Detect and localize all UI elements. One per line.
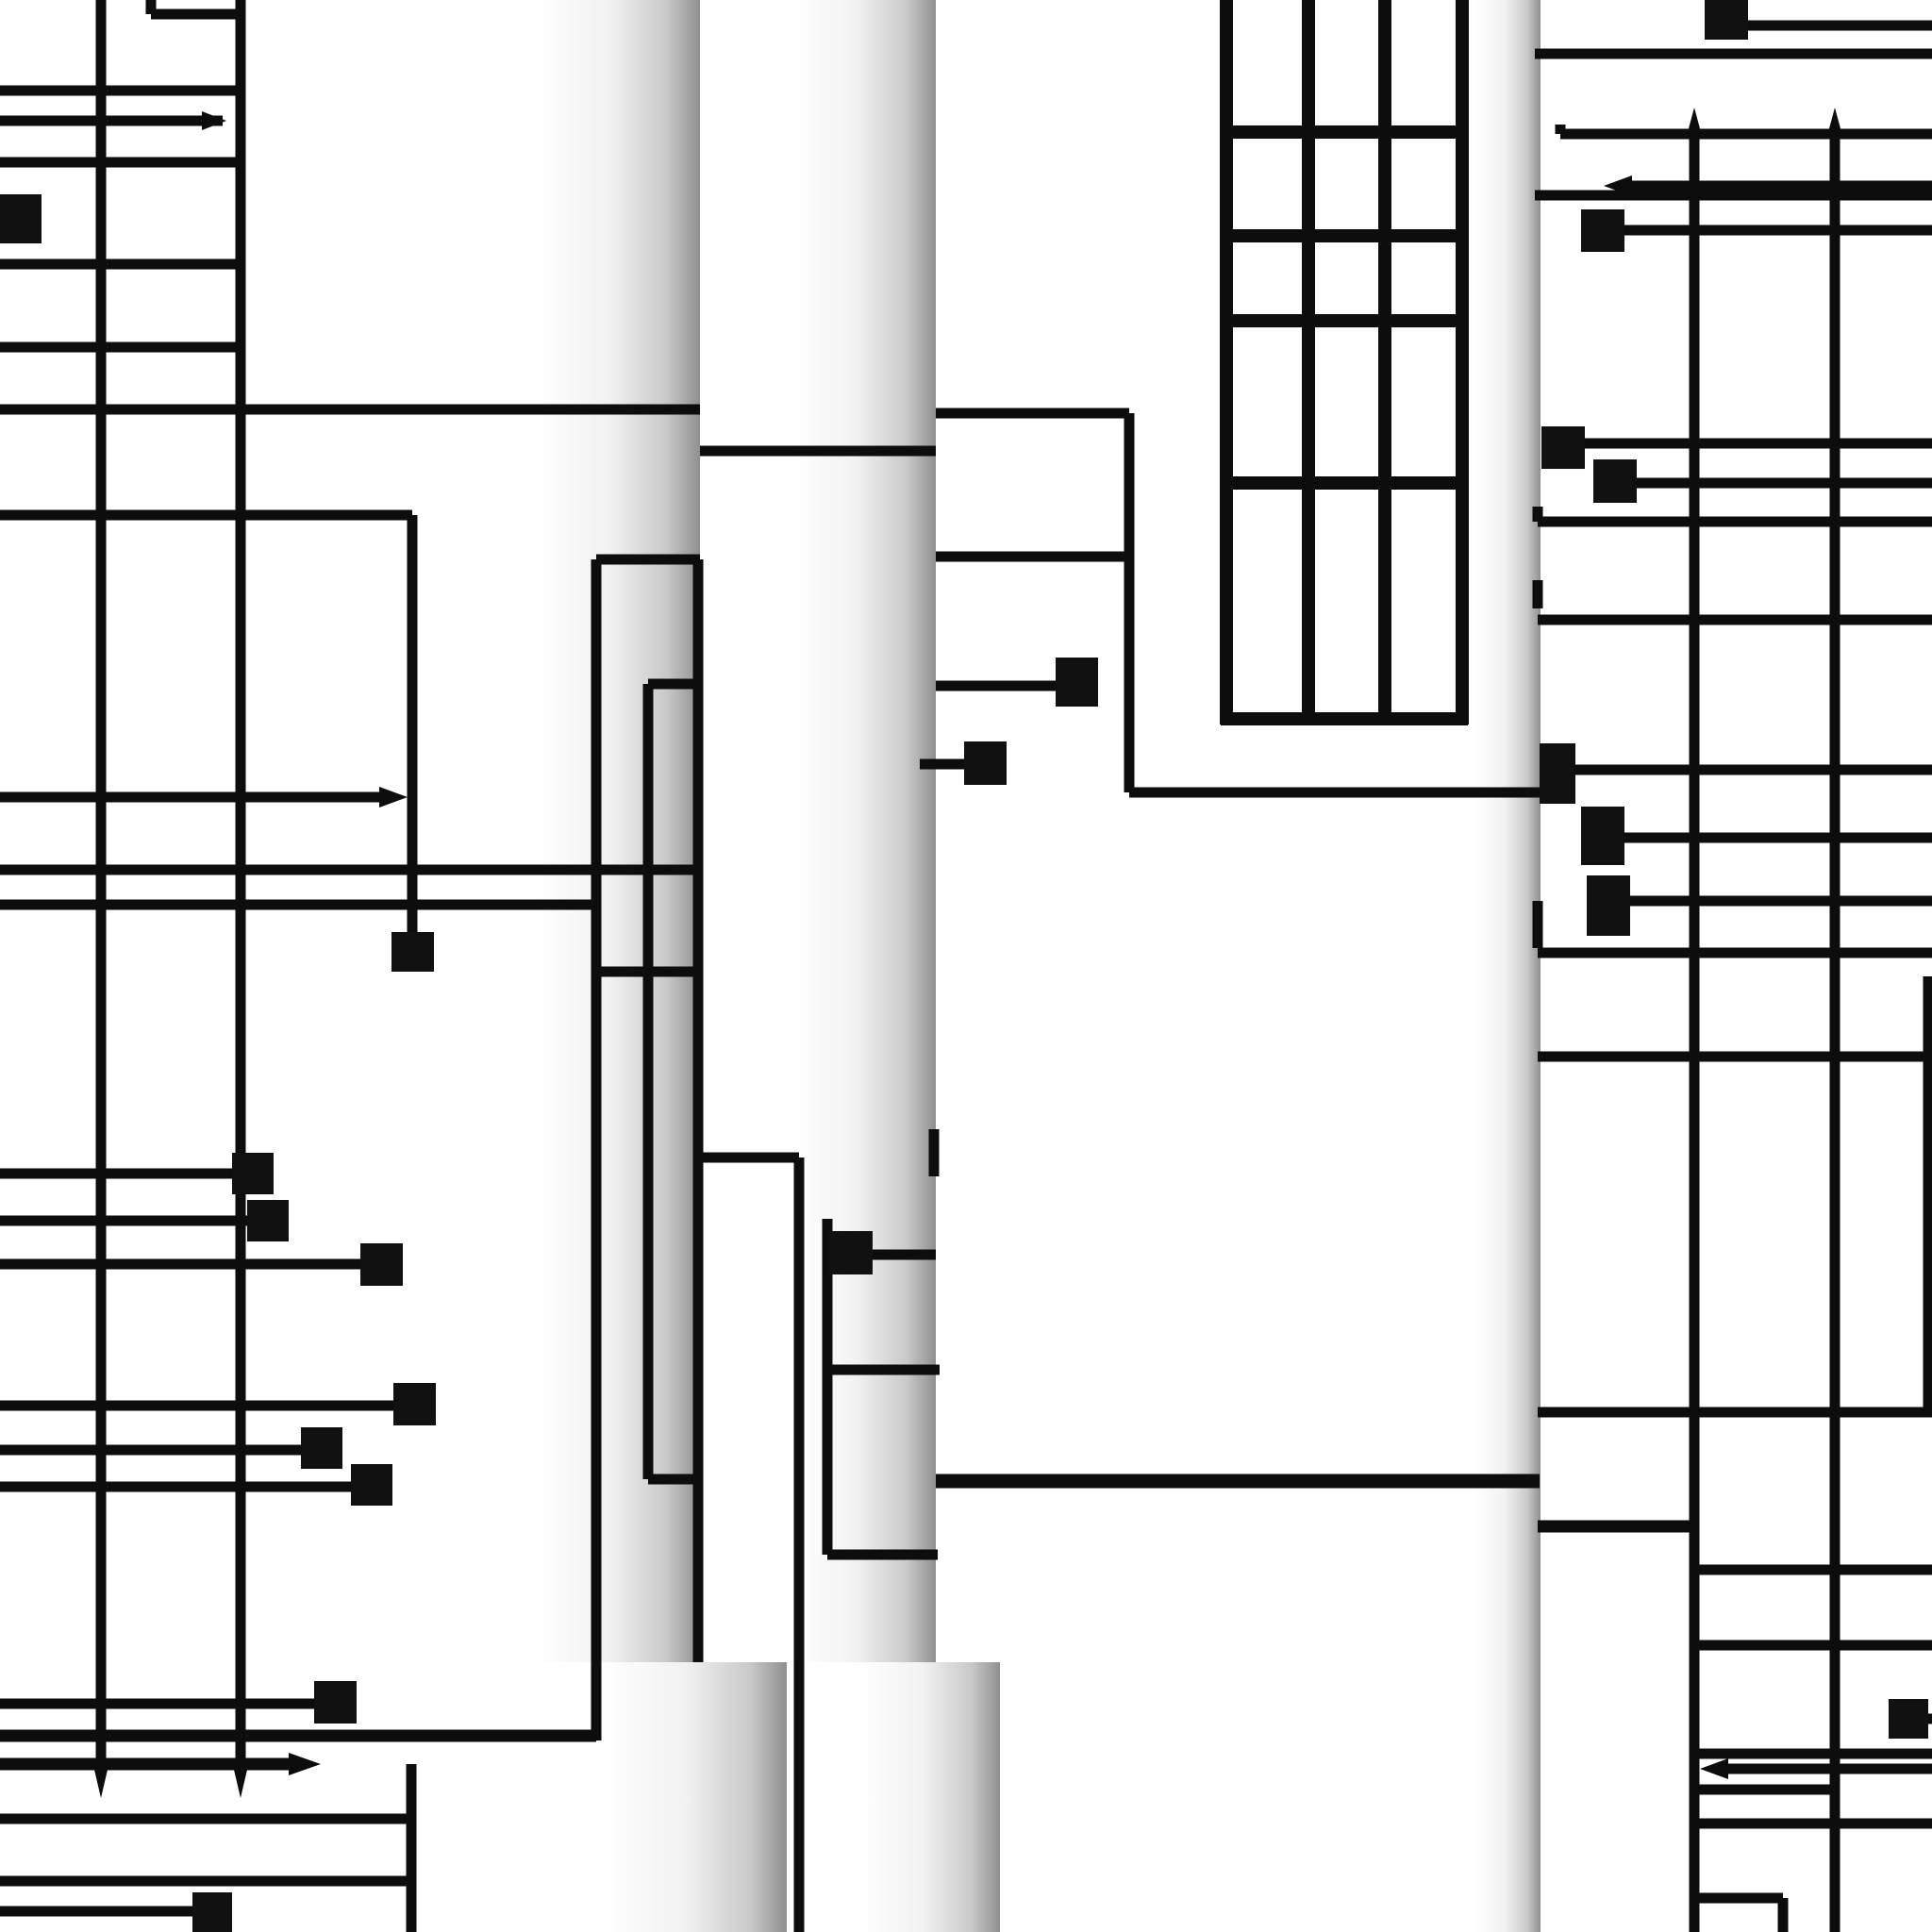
gradient-column: [533, 0, 700, 1662]
gradient-column: [1474, 0, 1541, 1932]
node-square: [1541, 426, 1585, 469]
node-square: [829, 1231, 873, 1274]
node-square: [360, 1243, 403, 1286]
node-square: [1889, 1699, 1928, 1739]
gradient-column: [791, 0, 936, 1662]
node-square: [1587, 875, 1630, 936]
node-square: [1581, 807, 1624, 865]
node-square: [314, 1681, 357, 1724]
node-square: [964, 741, 1007, 785]
node-square: [247, 1200, 289, 1241]
node-square: [393, 1383, 436, 1425]
node-square: [391, 932, 434, 972]
node-square: [1056, 658, 1098, 707]
node-square: [1593, 459, 1637, 503]
node-square: [351, 1464, 392, 1506]
abstract-circuit-artwork: [0, 0, 1932, 1932]
node-square: [1540, 743, 1575, 804]
node-square: [1581, 209, 1624, 252]
node-square: [0, 194, 42, 243]
background: [0, 0, 1932, 1932]
node-square: [192, 1892, 232, 1932]
circuit-pattern-svg: [0, 0, 1932, 1932]
node-square: [1705, 0, 1748, 40]
gradient-column: [602, 1662, 787, 1932]
node-square: [301, 1427, 342, 1469]
gradient-column: [858, 1662, 1000, 1932]
node-square: [232, 1153, 274, 1194]
